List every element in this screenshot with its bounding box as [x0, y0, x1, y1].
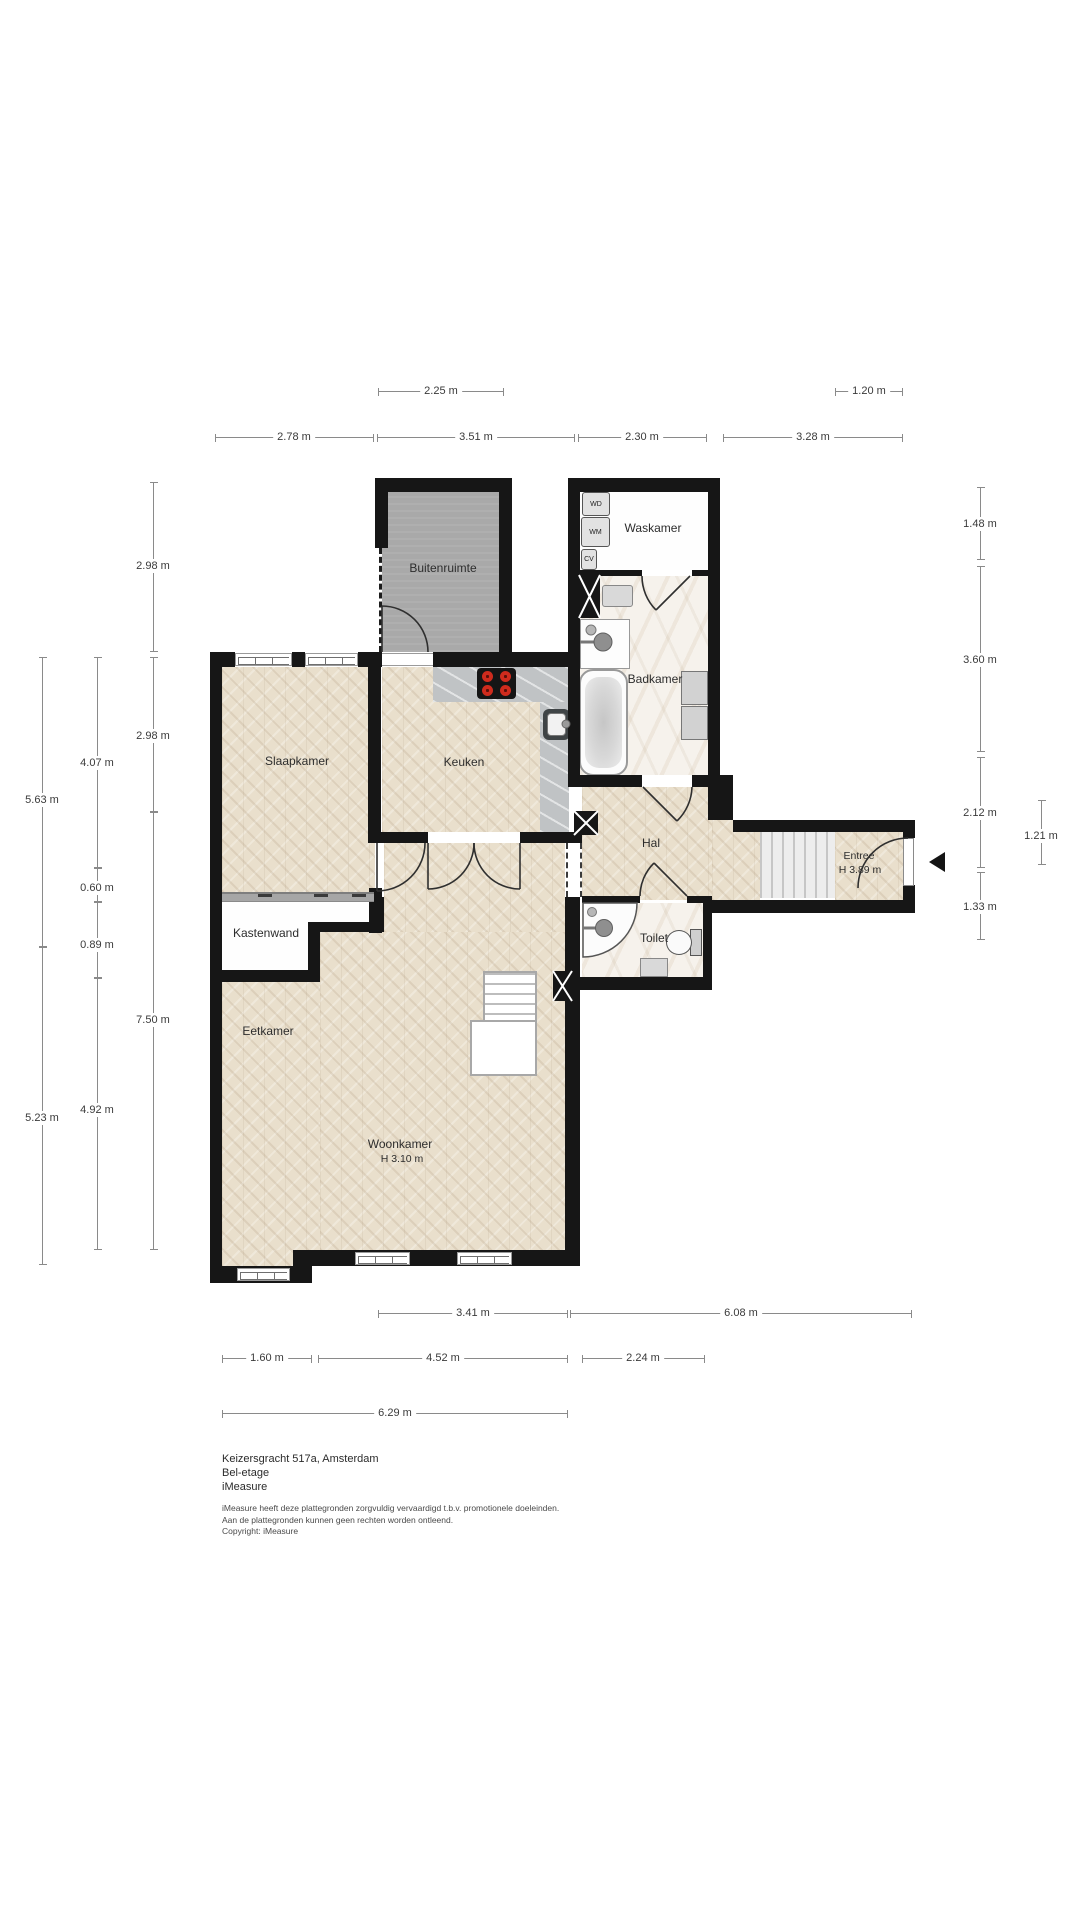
room-height-woonkamer: H 3.10 m: [381, 1153, 424, 1165]
room-label-eetkamer: Eetkamer: [242, 1024, 293, 1038]
room-label-waskamer: Waskamer: [625, 521, 682, 535]
toilet-corner-basin: [583, 903, 637, 957]
dim-label: 3.28 m: [792, 430, 834, 444]
door-arc-front-door: [858, 838, 908, 888]
dim-label: 6.29 m: [374, 1406, 416, 1420]
room-label-kastenwand: Kastenwand: [233, 926, 299, 940]
floor-name: Bel-etage: [222, 1466, 782, 1480]
dim-label: 1.60 m: [246, 1351, 288, 1365]
door-arc-badkamer-hal: [643, 787, 692, 821]
dim-label: 4.92 m: [76, 1103, 118, 1117]
dim-label: 2.98 m: [132, 559, 174, 573]
room-label-toilet: Toilet: [640, 931, 668, 945]
footer: Keizersgracht 517a, Amsterdam Bel-etage …: [222, 1452, 782, 1538]
dim-label: 1.48 m: [959, 517, 1001, 531]
dim-label: 4.52 m: [422, 1351, 464, 1365]
room-label-hal: Hal: [642, 836, 660, 850]
dim-label: 7.50 m: [132, 1013, 174, 1027]
address-line: Keizersgracht 517a, Amsterdam: [222, 1452, 782, 1466]
shaft-icon: [579, 575, 600, 618]
dim-label: 5.63 m: [21, 793, 63, 807]
door-arc-ensuite-left: [428, 843, 474, 889]
dim-label: 1.21 m: [1020, 829, 1062, 843]
disclaimer-line: Copyright: iMeasure: [222, 1526, 782, 1538]
room-label-slaapkamer: Slaapkamer: [265, 754, 329, 768]
brand-name: iMeasure: [222, 1480, 782, 1494]
dim-line: [42, 947, 43, 1265]
dim-label: 0.89 m: [76, 938, 118, 952]
dim-label: 3.41 m: [452, 1306, 494, 1320]
dim-label: 2.25 m: [420, 384, 462, 398]
dim-label: 2.98 m: [132, 729, 174, 743]
dim-label: 1.33 m: [959, 900, 1001, 914]
room-label-badkamer: Badkamer: [628, 672, 683, 686]
dim-label: 3.51 m: [455, 430, 497, 444]
room-label-buitenruimte: Buitenruimte: [409, 561, 476, 575]
dim-label: 6.08 m: [720, 1306, 762, 1320]
dim-label: 2.78 m: [273, 430, 315, 444]
dim-label: 2.12 m: [959, 806, 1001, 820]
dim-line: [153, 812, 154, 1250]
door-arc-badkamer-waskamer: [642, 576, 690, 610]
plan-symbols-layer: [0, 0, 1080, 1920]
bathroom-faucet-icon: [580, 625, 612, 651]
door-arc-ensuite-right: [474, 843, 520, 889]
door-arc-buitenruimte: [382, 606, 428, 652]
dim-label: 2.30 m: [621, 430, 663, 444]
room-label-woonkamer: Woonkamer: [368, 1137, 432, 1151]
dim-label: 0.60 m: [76, 881, 118, 895]
door-arc-slaapkamer: [377, 843, 425, 891]
door-arc-toilet: [640, 863, 687, 896]
shaft-icon: [553, 971, 572, 1001]
floorplan-canvas: WD WM CV: [0, 0, 1080, 1920]
disclaimer-line: Aan de plattegronden kunnen geen rechten…: [222, 1515, 782, 1527]
dim-label: 1.20 m: [848, 384, 890, 398]
dim-label: 4.07 m: [76, 756, 118, 770]
room-label-entree: Entree: [844, 850, 875, 862]
kitchen-faucet-icon: [562, 720, 570, 728]
room-label-keuken: Keuken: [444, 755, 485, 769]
dim-label: 2.24 m: [622, 1351, 664, 1365]
room-height-entree: H 3.89 m: [839, 864, 882, 876]
disclaimer-line: iMeasure heeft deze plattegronden zorgvu…: [222, 1503, 782, 1515]
entrance-arrow-icon: [929, 852, 945, 872]
shaft-icon: [574, 811, 598, 835]
dim-label: 3.60 m: [959, 653, 1001, 667]
dim-label: 5.23 m: [21, 1111, 63, 1125]
